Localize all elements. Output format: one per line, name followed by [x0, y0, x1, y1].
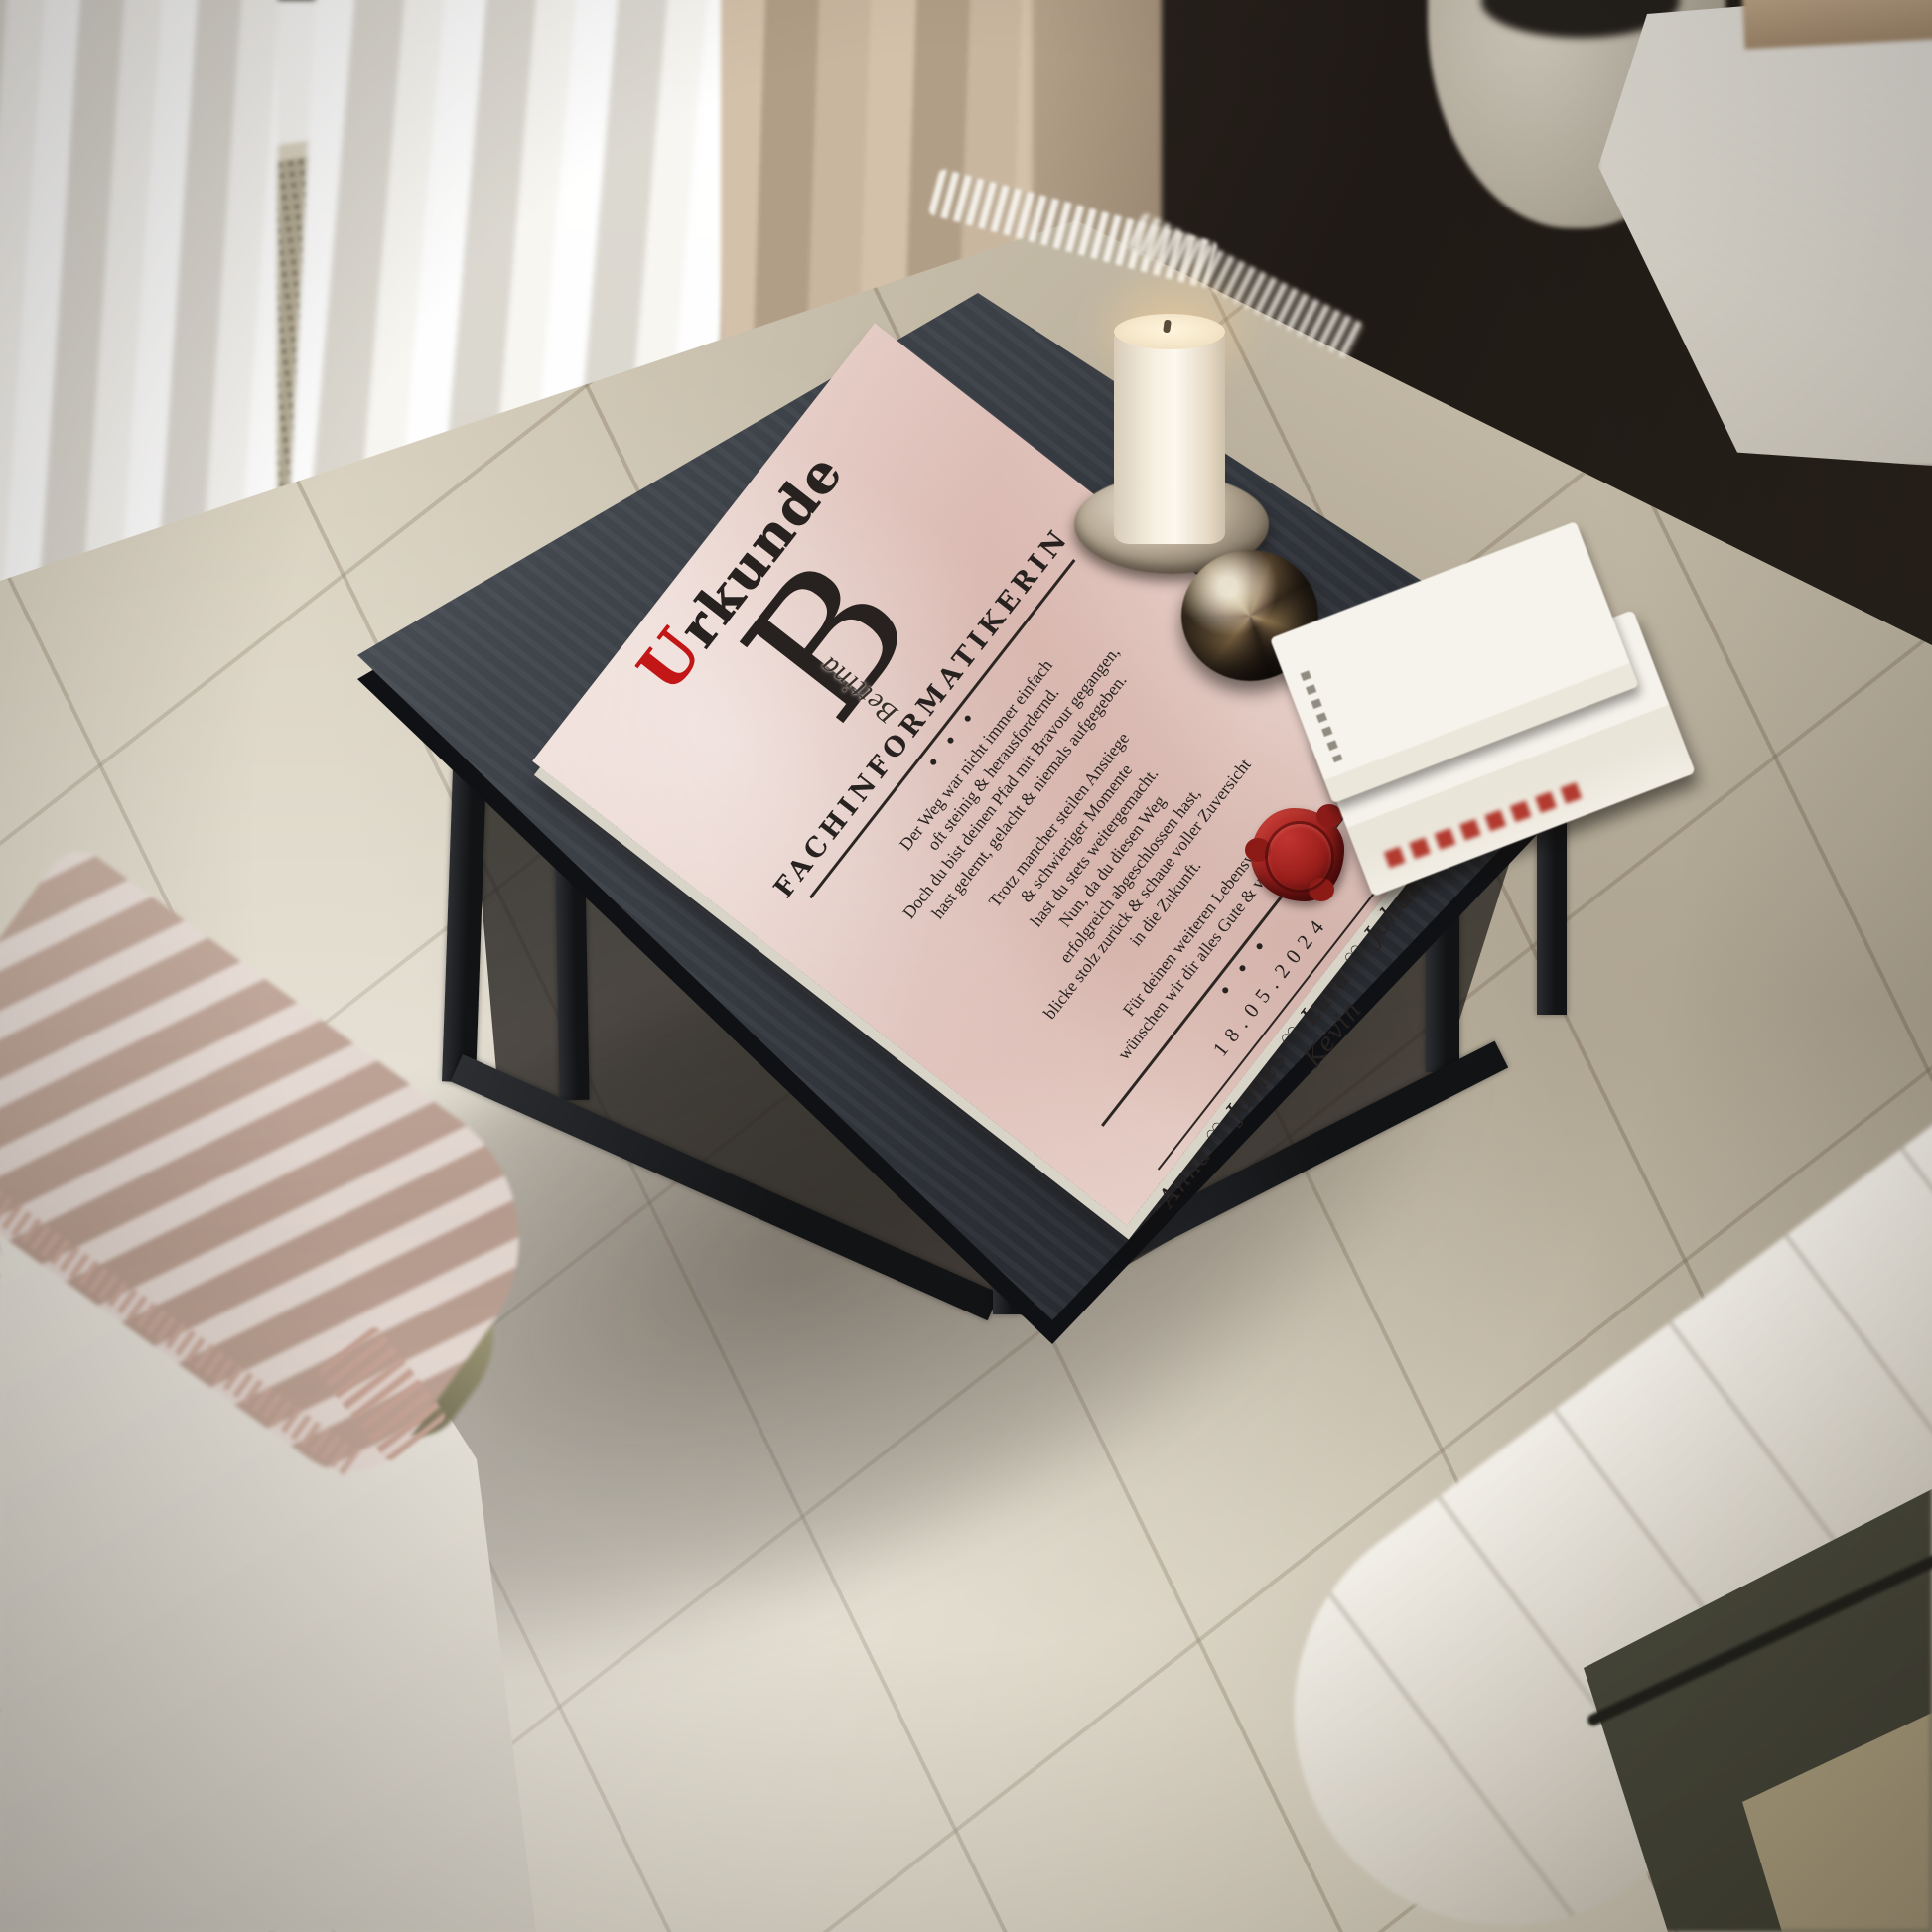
wax-seal-ring: [1265, 821, 1334, 893]
candle-top: [1114, 314, 1225, 349]
pillar-candle: [1114, 328, 1225, 544]
red-wax-seal: [1251, 808, 1344, 901]
book-cover-photo: [1414, 544, 1610, 719]
living-room-photo: Urkunde B Bettina FACHINFORMATIKERIN ● ●…: [0, 0, 1932, 1932]
